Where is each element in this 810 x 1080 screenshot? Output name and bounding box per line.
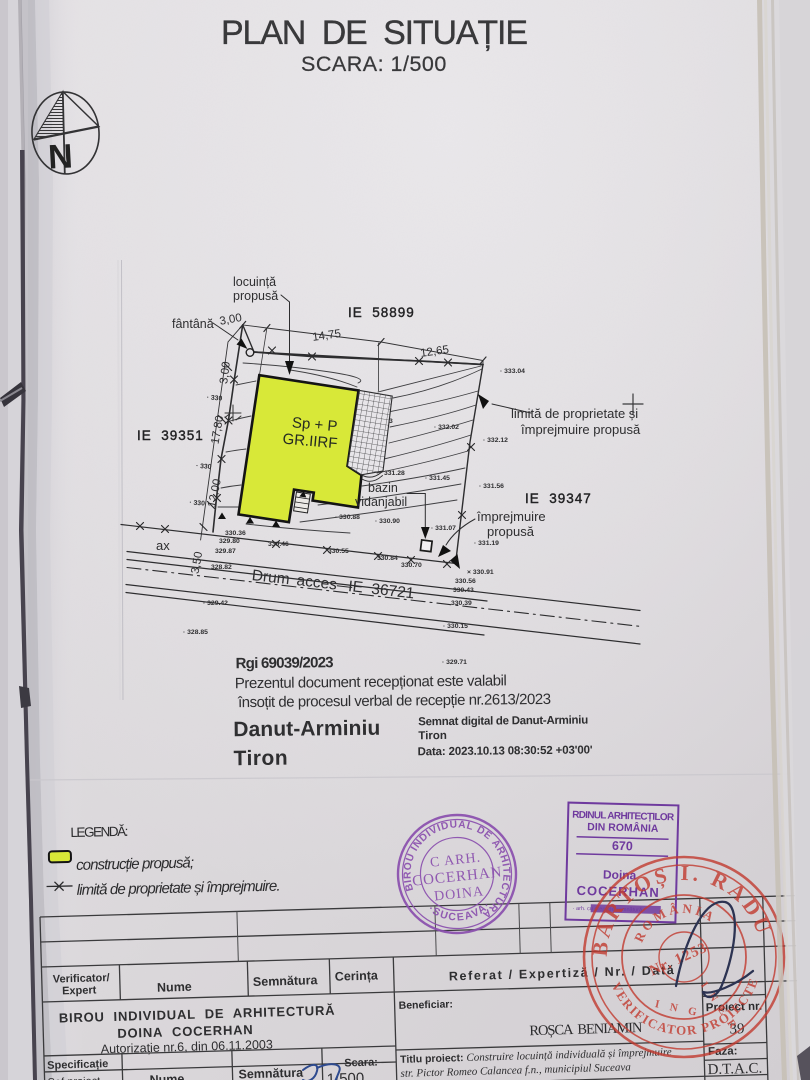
- svg-text:Tiron: Tiron: [233, 747, 287, 771]
- svg-text:construcție propusă;: construcție propusă;: [76, 854, 194, 873]
- svg-text:vidanjabil: vidanjabil: [355, 495, 407, 509]
- svg-text:· 329.71: · 329.71: [442, 659, 467, 666]
- svg-text:IE 39347: IE 39347: [525, 491, 592, 506]
- svg-text:328.82: 328.82: [211, 564, 232, 571]
- svg-text:· 332.02: · 332.02: [434, 424, 459, 431]
- svg-text:Beneficiar:: Beneficiar:: [398, 998, 453, 1012]
- svg-text:330.43: 330.43: [453, 587, 474, 594]
- svg-text:329.87: 329.87: [215, 548, 236, 555]
- svg-text:Tiron: Tiron: [418, 730, 447, 742]
- svg-text:locuință: locuință: [233, 275, 276, 289]
- svg-text:1/500: 1/500: [326, 1070, 364, 1080]
- svg-text:Șef proiect: Șef proiect: [48, 1075, 101, 1080]
- svg-text:· 331.56: · 331.56: [479, 483, 504, 490]
- svg-text:Nume: Nume: [157, 980, 192, 995]
- svg-text:· 328.85: · 328.85: [183, 629, 208, 636]
- svg-text:propusă: propusă: [487, 524, 535, 539]
- svg-text:LEGENDĂ:: LEGENDĂ:: [70, 824, 128, 840]
- svg-text:330.55: 330.55: [328, 548, 349, 555]
- svg-text:· 332.12: · 332.12: [483, 437, 508, 444]
- svg-text:PLAN DE SITUAȚIE: PLAN DE SITUAȚIE: [221, 14, 529, 52]
- svg-text:ROȘCA BENIAMIN: ROȘCA BENIAMIN: [529, 1020, 643, 1039]
- svg-text:IE 39351: IE 39351: [137, 428, 204, 443]
- svg-text:Specificație: Specificație: [47, 1058, 108, 1072]
- svg-text:Cerința: Cerința: [335, 968, 379, 983]
- svg-text:DIN ROMÂNIA: DIN ROMÂNIA: [587, 820, 659, 835]
- svg-text:330.46: 330.46: [268, 541, 289, 548]
- svg-text:· 330.88: · 330.88: [335, 514, 360, 521]
- svg-text:împrejmuire propusă: împrejmuire propusă: [520, 422, 641, 437]
- svg-text:Rgi 69039/2023: Rgi 69039/2023: [236, 654, 334, 672]
- svg-text:670: 670: [612, 839, 633, 854]
- svg-text:330.39: 330.39: [451, 600, 472, 607]
- svg-text:· 331.45: · 331.45: [425, 475, 450, 482]
- svg-text:IE 58899: IE 58899: [348, 305, 415, 320]
- svg-text:D.T.A.C.: D.T.A.C.: [707, 1061, 762, 1079]
- svg-text:Prezentul document recepționat: Prezentul document recepționat este vala…: [235, 672, 507, 692]
- svg-text:fântână: fântână: [172, 317, 214, 331]
- svg-text:· 330: · 330: [189, 499, 205, 507]
- svg-text:Verificator/: Verificator/: [53, 972, 110, 986]
- svg-text:330.36: 330.36: [225, 530, 246, 537]
- svg-text:Semnătura: Semnătura: [238, 1066, 304, 1080]
- svg-text:3: 3: [389, 418, 393, 425]
- svg-text:· 331.19: · 331.19: [474, 540, 499, 547]
- svg-text:· 330.15: · 330.15: [443, 623, 468, 630]
- svg-text:împrejmuire: împrejmuire: [476, 509, 546, 524]
- svg-text:limită de proprietate și: limită de proprietate și: [511, 406, 638, 421]
- svg-text:· 330: · 330: [207, 394, 223, 402]
- svg-text:331.28: 331.28: [384, 470, 405, 477]
- svg-text:Semnat digital de Danut-Armini: Semnat digital de Danut-Arminiu: [418, 715, 588, 729]
- svg-text:330.70: 330.70: [401, 562, 422, 569]
- svg-text:330.84: 330.84: [377, 555, 398, 562]
- svg-text:Semnătura: Semnătura: [253, 973, 319, 989]
- svg-text:· 329.42: · 329.42: [203, 600, 228, 607]
- svg-text:× 330.91: × 330.91: [467, 569, 494, 576]
- svg-text:însoțit de procesul verbal de: însoțit de procesul verbal de recepție n…: [237, 691, 551, 711]
- svg-text:330.56: 330.56: [455, 578, 476, 585]
- svg-text:Nume: Nume: [149, 1072, 184, 1080]
- svg-text:SCARA: 1/500: SCARA: 1/500: [301, 52, 447, 76]
- svg-text:· 330: · 330: [196, 463, 212, 471]
- svg-text:Danut-Arminiu: Danut-Arminiu: [233, 717, 380, 742]
- svg-text:Scara:: Scara:: [344, 1057, 378, 1070]
- svg-text:Data: 2023.10.13 08:30:52 +03': Data: 2023.10.13 08:30:52 +03'00': [417, 744, 592, 758]
- svg-text:ax: ax: [156, 538, 170, 553]
- svg-text:· 331.07: · 331.07: [431, 525, 456, 532]
- svg-text:propusă: propusă: [233, 289, 278, 303]
- svg-text:Expert: Expert: [62, 984, 97, 997]
- svg-text:· 330.90: · 330.90: [375, 518, 400, 525]
- svg-text:329.80: 329.80: [219, 538, 240, 545]
- svg-text:bazin: bazin: [368, 481, 398, 495]
- svg-text:· 333.04: · 333.04: [500, 368, 525, 375]
- svg-text:N: N: [47, 137, 74, 176]
